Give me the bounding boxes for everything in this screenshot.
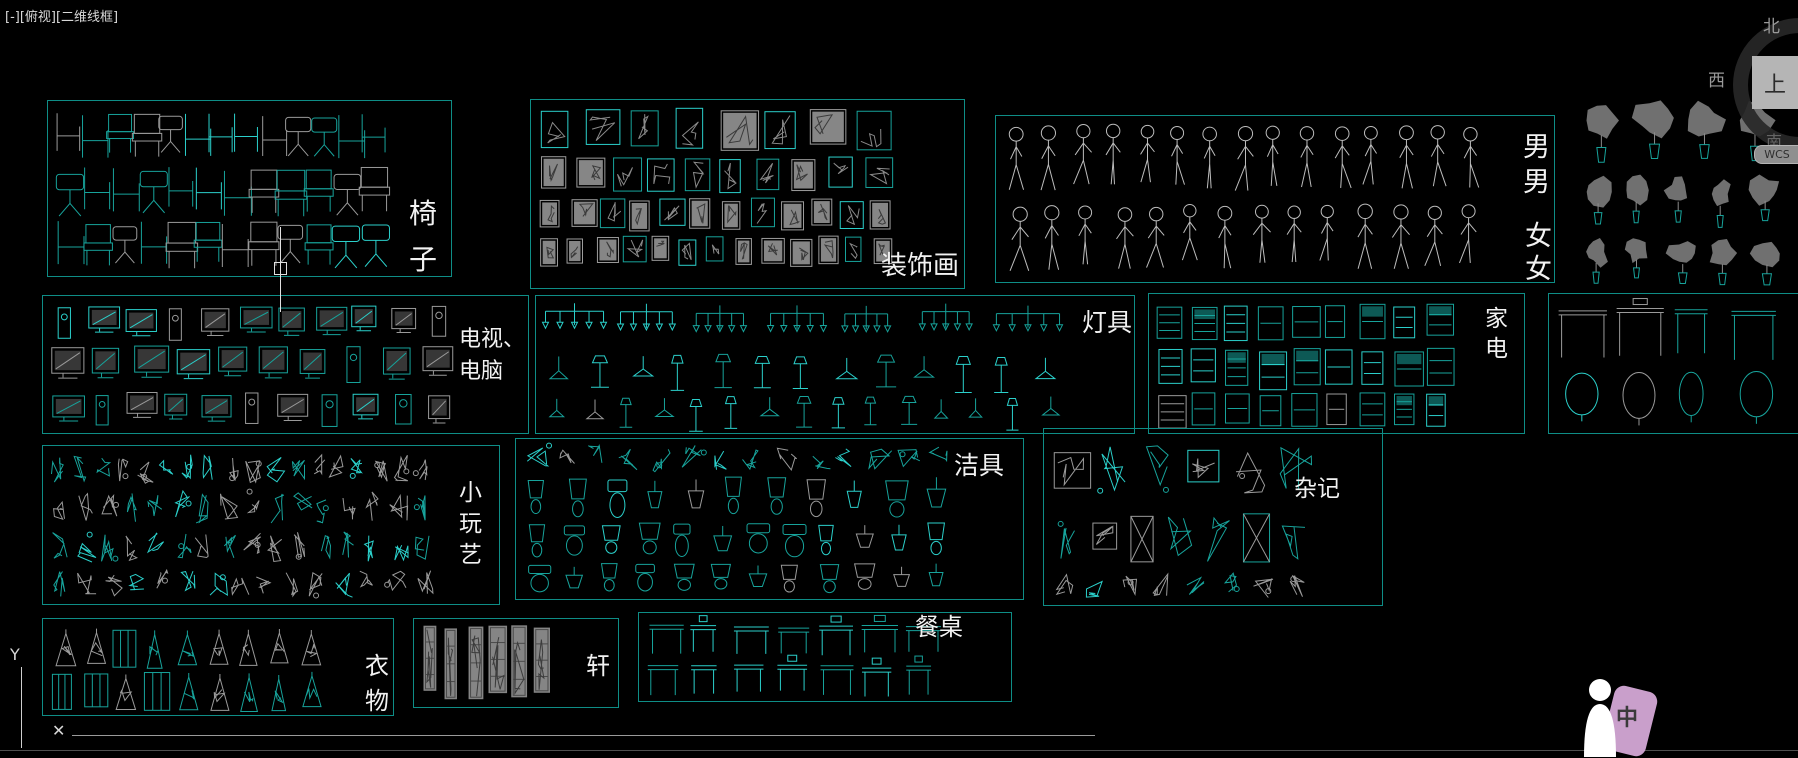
panel-paintings: 装饰画 — [530, 99, 965, 289]
cad-blocks — [43, 619, 393, 715]
cad-blocks — [536, 296, 1134, 433]
ucs-y-axis-label: Y — [10, 645, 20, 664]
panel-lamps: 灯具 — [535, 295, 1135, 434]
cad-blocks — [996, 116, 1554, 282]
panel-label-toys: 小 玩 艺 — [459, 478, 482, 571]
panel-misc: 杂记 — [1043, 428, 1383, 606]
badge-label: 中 — [1616, 700, 1638, 732]
user-badge[interactable]: 中 — [1580, 678, 1660, 757]
panel-label-people-1: 女 女 — [1525, 220, 1552, 286]
panel-toys: 小 玩 艺 — [42, 445, 500, 605]
cad-blocks — [1549, 294, 1798, 433]
panel-chairs: 椅 子 — [47, 100, 452, 277]
panel-label-xuan: 轩 — [586, 653, 610, 679]
drawing-canvas[interactable]: [-][俯视][二维线框] 椅 子装饰画男 男女 女电视、 电脑灯具家 电小 玩… — [0, 0, 1798, 757]
panel-xuan: 轩 — [413, 618, 619, 708]
cad-blocks — [1044, 429, 1382, 605]
panel-consoles — [1548, 293, 1798, 434]
command-window-edge[interactable] — [72, 735, 1095, 736]
panel-appliances: 家 电 — [1148, 293, 1525, 434]
panel-tv: 电视、 电脑 — [42, 295, 529, 434]
panel-label-tv: 电视、 电脑 — [459, 324, 525, 388]
panel-label-appliances: 家 电 — [1485, 304, 1508, 364]
panel-label-dining: 餐桌 — [915, 615, 963, 640]
viewport-controls[interactable]: [-][俯视][二维线框] — [5, 6, 118, 25]
ucs-y-axis-line — [21, 667, 22, 748]
cad-blocks — [516, 439, 1023, 599]
viewcube-wcs-menu[interactable]: WCS — [1754, 145, 1798, 164]
viewcube-north-label[interactable]: 北 — [1763, 12, 1780, 37]
panel-label-clothes: 衣 物 — [365, 649, 389, 719]
panel-label-chairs: 椅 子 — [409, 191, 437, 283]
panel-clothes: 衣 物 — [42, 618, 394, 716]
cad-blocks — [43, 446, 499, 604]
panel-label-lamps: 灯具 — [1082, 310, 1132, 336]
close-icon[interactable]: ✕ — [52, 721, 65, 740]
panel-label-people: 男 男 — [1523, 130, 1550, 200]
pickbox-cursor — [274, 262, 287, 275]
viewcube-west-label[interactable]: 西 — [1708, 66, 1725, 91]
cad-blocks — [43, 296, 528, 433]
statusbar-divider — [0, 750, 1798, 751]
panel-dining: 餐桌 — [638, 612, 1012, 702]
cad-blocks — [1149, 294, 1524, 433]
panel-label-misc: 杂记 — [1294, 477, 1340, 501]
panel-people: 男 男女 女 — [995, 115, 1555, 283]
viewcube-top-face[interactable]: 上 — [1752, 56, 1798, 109]
panel-label-sanitary: 洁具 — [954, 453, 1004, 479]
cad-blocks — [48, 101, 451, 276]
panel-sanitary: 洁具 — [515, 438, 1024, 600]
panel-label-paintings: 装饰画 — [881, 252, 959, 280]
